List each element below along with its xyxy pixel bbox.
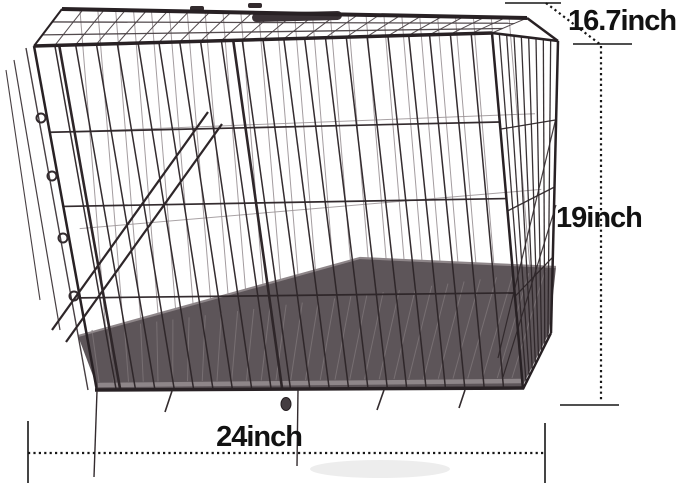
crate-left-panel-edge bbox=[6, 48, 88, 390]
width-dimension-label: 24inch bbox=[216, 421, 302, 453]
floor-shadow bbox=[310, 460, 450, 478]
crate-plastic-tray bbox=[78, 258, 556, 389]
tray-latch-knob bbox=[281, 398, 291, 411]
depth-dimension-label: 16.7inch bbox=[568, 5, 676, 37]
dimension-annotations: 16.7inch 19inch 24inch bbox=[28, 3, 676, 483]
dog-crate-illustration: 16.7inch 19inch 24inch bbox=[0, 0, 679, 483]
height-dimension-label: 19inch bbox=[556, 202, 642, 234]
product-image: 16.7inch 19inch 24inch bbox=[0, 0, 679, 483]
